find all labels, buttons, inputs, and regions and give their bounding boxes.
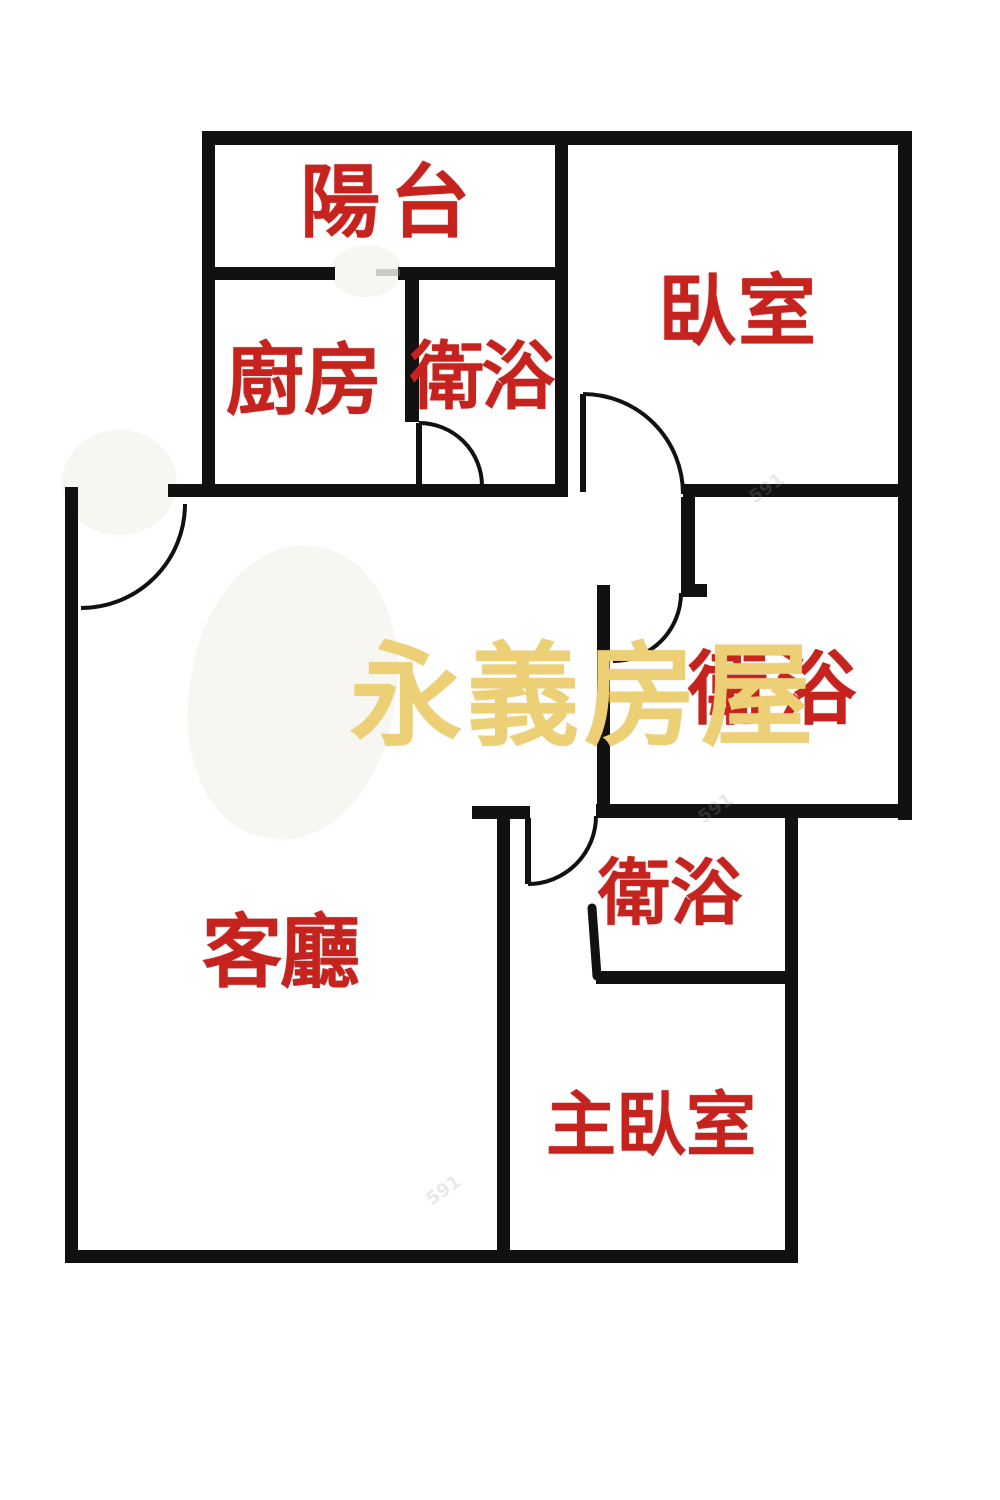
room-label-bathroom-lower: 衛浴 — [598, 857, 742, 929]
room-label-balcony: 陽台 — [300, 163, 480, 243]
room-label-bathroom-top: 衛浴 — [410, 340, 552, 414]
floor-plan: 陽台 廚房 衛浴 臥室 衛浴 客廳 衛浴 主臥室 永義房屋 591 591 59… — [0, 0, 1000, 1500]
room-label-master-bedroom: 主臥室 — [546, 1090, 756, 1160]
room-label-living-room: 客廳 — [202, 913, 358, 993]
door-arc-bedroom — [583, 394, 683, 494]
door-arc-entry — [81, 504, 185, 608]
room-label-kitchen: 廚房 — [226, 342, 382, 420]
door-arc-bathroom-lower — [528, 816, 596, 884]
brand-watermark: 永義房屋 — [350, 641, 818, 753]
handdrawn-wall-stroke — [592, 908, 597, 976]
room-label-bedroom: 臥室 — [658, 273, 818, 351]
door-arc-bathroom-top — [419, 423, 482, 486]
